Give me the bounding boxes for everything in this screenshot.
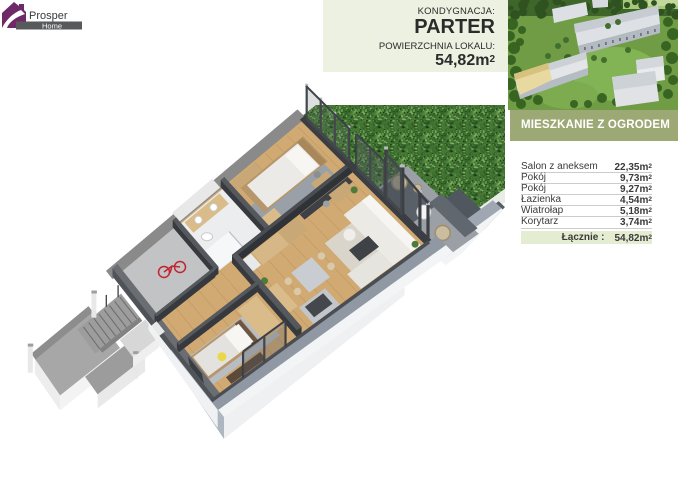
svg-text:Prosper: Prosper [29,10,68,22]
svg-text:Home: Home [42,22,62,31]
